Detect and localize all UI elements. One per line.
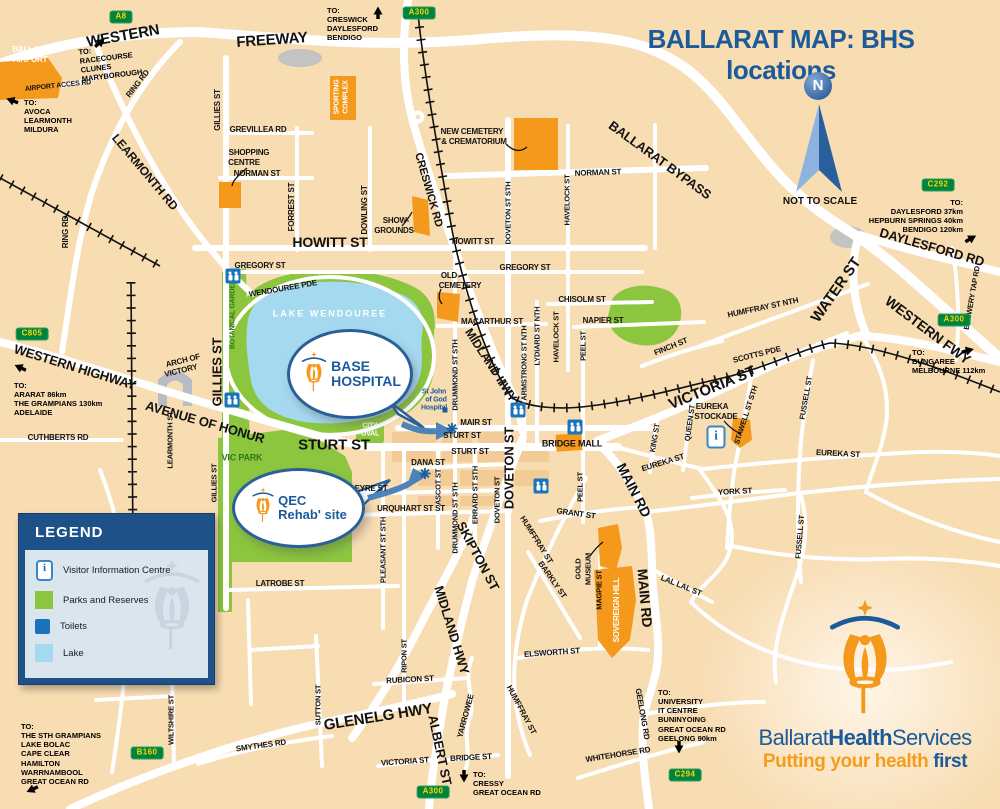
street-label: ARMSTRONG ST NTH xyxy=(520,325,528,400)
destination-line: WARRNAMBOOL xyxy=(21,768,101,777)
toilets-icon xyxy=(225,393,240,408)
street-label: GILLIES ST xyxy=(214,89,222,131)
route-sign: A300 xyxy=(938,314,971,327)
toilets-icon xyxy=(568,420,583,435)
legend-panel: i Visitor Information Centre Parks and R… xyxy=(25,550,208,678)
destination-note: TO:RACECOURSECLUNESMARYBOROUGH xyxy=(78,40,143,84)
street-label: GILLIES ST xyxy=(211,338,224,407)
street-label: DOVETON ST xyxy=(503,427,516,509)
legend-item-lake: Lake xyxy=(35,644,208,662)
street-label: WILTSHIRE ST xyxy=(167,695,175,745)
compass: N NOT TO SCALE xyxy=(770,68,870,213)
street-label: ERRARD ST STH xyxy=(471,466,479,524)
direction-arrow-icon xyxy=(371,6,385,25)
street-label: LEARMONTH ST xyxy=(166,411,174,468)
street-label: PEEL ST xyxy=(576,472,584,502)
street-label: URQUHART ST ST xyxy=(377,505,445,513)
route-sign: C294 xyxy=(669,769,702,782)
street-label: FORREST ST xyxy=(288,183,296,232)
street-label: DRUMMOND ST STH xyxy=(451,482,459,553)
parks-swatch xyxy=(35,591,53,609)
legend: LEGEND i Visitor Information Centre Park… xyxy=(18,513,215,685)
street-label: EUREKA xyxy=(696,403,729,411)
street-label: DRUMMOND ST STH xyxy=(451,339,459,410)
street-label: LAKE WENDOUREE xyxy=(273,310,388,319)
destination-line: TO: xyxy=(658,688,726,697)
route-sign: C805 xyxy=(16,328,49,341)
legend-item-label: Visitor Information Centre xyxy=(63,565,171,576)
route-sign: A300 xyxy=(417,786,450,799)
legend-item-label: Lake xyxy=(63,648,84,659)
direction-arrow-icon xyxy=(961,344,975,363)
street-label: of God xyxy=(425,397,446,404)
toilets-icon xyxy=(511,403,526,418)
street-label: OLD xyxy=(441,272,457,280)
bhs-lily-icon xyxy=(299,351,329,398)
street-label: NORMAN ST xyxy=(575,168,622,178)
destination-line: ADELAIDE xyxy=(14,408,102,417)
street-label: RING RD xyxy=(62,216,70,248)
destination-line: BENDIGO xyxy=(327,33,378,42)
street-label: CUTHBERTS RD xyxy=(28,434,89,442)
destination-line: CRESSY xyxy=(473,779,541,788)
callout-line: BASE xyxy=(331,358,370,374)
legend-item-parks: Parks and Reserves xyxy=(35,591,208,609)
direction-arrow-icon xyxy=(25,783,39,802)
street-label: SOVEREIGN HILL xyxy=(613,578,621,643)
destination-note: TO:UNIVERSITYIT CENTREBUNINYOINGGREAT OC… xyxy=(658,688,726,743)
street-label: VIC PARK xyxy=(222,454,263,463)
destination-line: GEELONG 90km xyxy=(658,734,726,743)
compass-north-icon: N xyxy=(804,72,832,100)
logo-tagline: Putting your health first xyxy=(740,751,990,773)
toilets-icon xyxy=(226,269,241,284)
destination-line: HEPBURN SPRINGS 40km xyxy=(843,216,963,225)
street-label: GOLD xyxy=(574,559,582,580)
street-label: DOVETON ST xyxy=(493,477,501,524)
legend-title: LEGEND xyxy=(35,524,214,541)
street-label: AIRPORT xyxy=(13,56,48,64)
destination-line: LEARMONTH xyxy=(24,116,72,125)
street-label: NEW CEMETERY xyxy=(441,128,504,136)
base-hospital-callout[interactable]: BASE HOSPITAL xyxy=(287,329,413,419)
street-label: COMPLEX xyxy=(343,80,350,113)
destination-line: MELBOURNE 112km xyxy=(912,366,985,375)
street-label: PLEASANT ST STH xyxy=(379,517,387,583)
route-sign: B160 xyxy=(131,747,164,760)
street-label: STURT ST xyxy=(451,448,489,456)
street-label: OVAL xyxy=(361,431,379,438)
street-label: MAGPIE ST xyxy=(595,570,603,609)
direction-arrow-icon xyxy=(5,94,19,113)
bhs-lily-icon xyxy=(250,487,276,528)
route-sign: A300 xyxy=(403,7,436,20)
direction-arrow-icon xyxy=(13,361,27,380)
destination-line: LAKE BOLAC xyxy=(21,740,101,749)
street-label: MAIR ST xyxy=(460,419,492,427)
street-label: STURT ST xyxy=(298,438,370,453)
street-label: RIPON ST xyxy=(400,639,408,673)
destination-line: DAYLESFORD xyxy=(327,24,378,33)
street-label: & CREMATORIUM xyxy=(441,138,507,146)
destination-line: TO: xyxy=(473,770,541,779)
destination-note: TO:ARARAT 86kmTHE GRAMPIANS 130kmADELAID… xyxy=(14,381,102,418)
street-label: BOTANICAL GARDENS xyxy=(230,275,237,349)
street-label: STOCKADE xyxy=(694,413,737,421)
destination-line: TO: xyxy=(14,381,102,390)
direction-arrow-icon xyxy=(457,770,471,789)
street-label: DOWLING ST xyxy=(361,185,369,234)
street-label: BALLARAT xyxy=(12,46,53,54)
street-label: HOWITT ST xyxy=(292,235,367,249)
info-icon[interactable]: i xyxy=(707,426,726,449)
street-label: LATROBE ST xyxy=(256,580,305,588)
visitor-info-icon: i xyxy=(36,560,53,581)
destination-line: BENDIGO 120km xyxy=(843,225,963,234)
destination-line: THE STH GRAMPIANS xyxy=(21,731,101,740)
street-label: ASCOT ST xyxy=(434,469,442,505)
destination-line: BUNINYOING xyxy=(658,715,726,724)
street-label: SHOW- xyxy=(383,217,409,225)
legend-item-label: Toilets xyxy=(60,621,87,632)
street-label: CHISOLM ST xyxy=(558,296,605,304)
direction-arrow-icon xyxy=(672,741,686,760)
street-label: SUTTON ST xyxy=(314,685,322,726)
legend-item-visitor-info: i Visitor Information Centre xyxy=(35,560,208,581)
street-label: SPORTING xyxy=(334,80,341,115)
street-label: CEMETERY xyxy=(439,282,482,290)
street-label: CENTRE xyxy=(228,159,260,167)
street-label: MACARTHUR ST xyxy=(461,318,523,326)
callout-line: Rehab' site xyxy=(278,507,347,522)
scale-note: NOT TO SCALE xyxy=(770,196,870,207)
destination-line: HAMILTON xyxy=(21,759,101,768)
street-label: SHOPPING xyxy=(229,149,270,157)
destination-line: CAPE CLEAR xyxy=(21,749,101,758)
route-sign: C292 xyxy=(922,179,955,192)
destination-note: TO:AVOCALEARMONTHMILDURA xyxy=(24,98,72,135)
destination-line: AVOCA xyxy=(24,107,72,116)
street-label: GREVILLEA RD xyxy=(230,126,287,134)
destination-line: GREAT OCEAN RD xyxy=(473,788,541,797)
destination-line: GREAT OCEAN RD xyxy=(658,725,726,734)
direction-arrow-icon xyxy=(964,232,978,251)
street-label: GREGORY ST xyxy=(235,262,286,270)
location-dot xyxy=(443,408,448,413)
lake-swatch xyxy=(35,644,53,662)
destination-note: TO:THE STH GRAMPIANSLAKE BOLACCAPE CLEAR… xyxy=(21,722,101,786)
destination-note: TO:CRESSYGREAT OCEAN RD xyxy=(473,770,541,797)
street-label: HOWITT ST xyxy=(452,238,494,246)
bhs-lily-icon xyxy=(822,705,908,722)
toilets-icon xyxy=(534,479,549,494)
street-label: DOVETON ST STH xyxy=(504,182,512,245)
legend-item-toilets: Toilets xyxy=(35,619,208,634)
street-label: HAVELOCK ST xyxy=(552,312,560,363)
direction-arrow-icon xyxy=(93,36,107,55)
street-label: CITY xyxy=(362,423,377,430)
callout-line: HOSPITAL xyxy=(331,373,401,389)
street-label: NORMAN ST xyxy=(234,170,281,178)
destination-line: THE GRAMPIANS 130km xyxy=(14,399,102,408)
destination-line: MILDURA xyxy=(24,125,72,134)
bhs-logo: BallaratHealthServices Putting your heal… xyxy=(740,598,990,773)
route-sign: A8 xyxy=(109,11,132,24)
toilets-icon xyxy=(35,619,50,634)
street-label: PEEL ST xyxy=(579,331,587,361)
street-label: HAVELOCK ST xyxy=(563,175,571,226)
destination-line: TO: xyxy=(24,98,72,107)
street-label: GROUNDS xyxy=(374,227,414,235)
logo-wordmark: BallaratHealthServices xyxy=(740,725,990,751)
destination-line: UNIVERSITY xyxy=(658,697,726,706)
destination-line: IT CENTRE xyxy=(658,706,726,715)
destination-line: ARARAT 86km xyxy=(14,390,102,399)
street-label: LYDIARD ST NTH xyxy=(533,306,541,365)
legend-item-label: Parks and Reserves xyxy=(63,595,149,606)
street-label: GREGORY ST xyxy=(500,264,551,272)
street-label: GILLIES ST xyxy=(210,464,218,503)
street-label: BRIDGE MALL xyxy=(542,440,602,449)
street-label: NAPIER ST xyxy=(583,317,624,325)
site-star-icon xyxy=(418,467,432,486)
street-label: MUSEUM xyxy=(584,553,592,585)
site-star-icon xyxy=(445,422,459,441)
ballarat-map: WESTERNFREEWAYBALLARATAIRPORTAIRPORT ACC… xyxy=(0,0,1000,809)
qec-rehab-callout[interactable]: QEC Rehab' site xyxy=(232,468,365,548)
street-label: St John xyxy=(422,389,446,396)
destination-line: TO: xyxy=(21,722,101,731)
